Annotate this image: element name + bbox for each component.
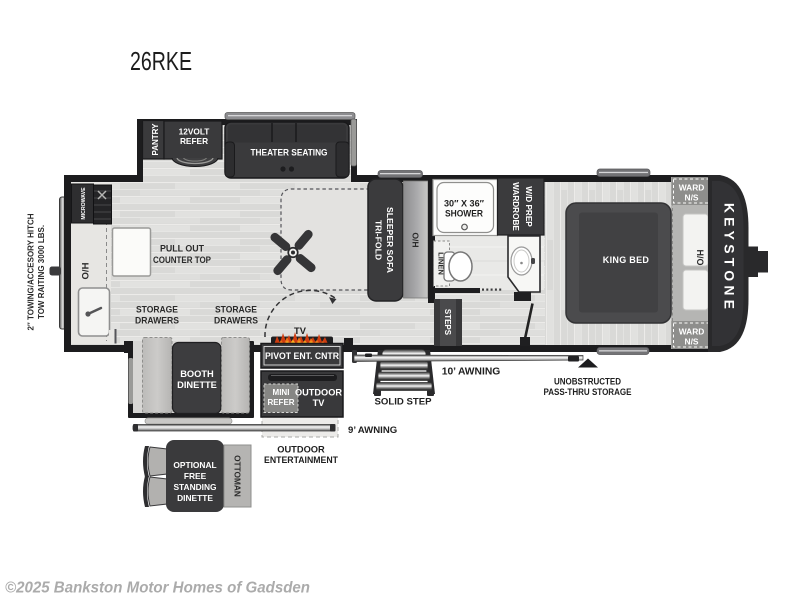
svg-text:W/D PREP: W/D PREP [524,186,533,227]
svg-text:©2025 Bankston Motor Homes of: ©2025 Bankston Motor Homes of Gadsden [5,580,310,597]
svg-text:STANDING: STANDING [173,482,216,492]
svg-text:30″ X 36″: 30″ X 36″ [444,199,485,209]
svg-text:12VOLT: 12VOLT [179,127,210,137]
svg-text:10’ AWNING: 10’ AWNING [442,367,501,378]
svg-text:9’ AWNING: 9’ AWNING [348,425,397,436]
svg-text:WARD: WARD [679,183,705,193]
svg-text:N/S: N/S [685,193,699,203]
svg-text:TRI-FOLD: TRI-FOLD [374,220,384,260]
svg-text:SOLID STEP: SOLID STEP [374,397,432,408]
svg-text:O/H: O/H [81,262,92,279]
svg-text:H/O: H/O [695,249,705,265]
svg-text:PANTRY: PANTRY [151,123,160,156]
svg-text:THEATER SEATING: THEATER SEATING [251,148,328,158]
svg-text:REFER: REFER [180,136,208,146]
svg-text:2″ TOWING/ACCESORY HITCH: 2″ TOWING/ACCESORY HITCH [27,213,36,330]
svg-text:KING BED: KING BED [603,255,650,265]
svg-text:UNOBSTRUCTED: UNOBSTRUCTED [554,377,621,387]
svg-text:SLEEPER SOFA: SLEEPER SOFA [385,207,395,273]
svg-text:TOW RAITING 3000 LBS.: TOW RAITING 3000 LBS. [37,225,46,319]
svg-text:N/S: N/S [685,337,699,347]
svg-text:REFER: REFER [267,398,294,407]
svg-text:MICROWAVE: MICROWAVE [81,187,87,220]
svg-text:DINETTE: DINETTE [177,380,217,390]
svg-text:DINETTE: DINETTE [177,493,213,503]
svg-text:PASS-THRU STORAGE: PASS-THRU STORAGE [544,387,632,397]
svg-text:KEYSTONE: KEYSTONE [722,203,738,313]
svg-text:OPTIONAL: OPTIONAL [173,460,216,470]
svg-text:OUTDOOR: OUTDOOR [277,445,325,455]
svg-text:O/H: O/H [411,232,421,247]
svg-text:DRAWERS: DRAWERS [214,316,258,326]
svg-text:STEPS: STEPS [443,309,452,336]
svg-text:BOOTH: BOOTH [180,369,214,379]
svg-text:FREE: FREE [184,471,207,481]
svg-text:OTTOMAN: OTTOMAN [233,455,243,497]
svg-text:STORAGE: STORAGE [136,305,178,315]
svg-text:SHOWER: SHOWER [445,209,483,219]
svg-text:TV: TV [294,326,307,336]
svg-text:STORAGE: STORAGE [215,305,257,315]
svg-text:PIVOT ENT. CNTR: PIVOT ENT. CNTR [265,351,339,361]
svg-text:OUTDOOR: OUTDOOR [295,388,342,398]
svg-text:ENTERTAINMENT: ENTERTAINMENT [264,455,338,465]
svg-text:TV: TV [313,398,326,408]
svg-text:PULL OUT: PULL OUT [160,244,204,255]
svg-text:MINI: MINI [273,388,290,397]
svg-text:WARD: WARD [679,327,705,337]
svg-text:WARDROBE: WARDROBE [511,182,520,231]
svg-text:DRAWERS: DRAWERS [135,316,179,326]
svg-text:COUNTER TOP: COUNTER TOP [153,255,212,266]
svg-text:26RKE: 26RKE [130,48,192,76]
